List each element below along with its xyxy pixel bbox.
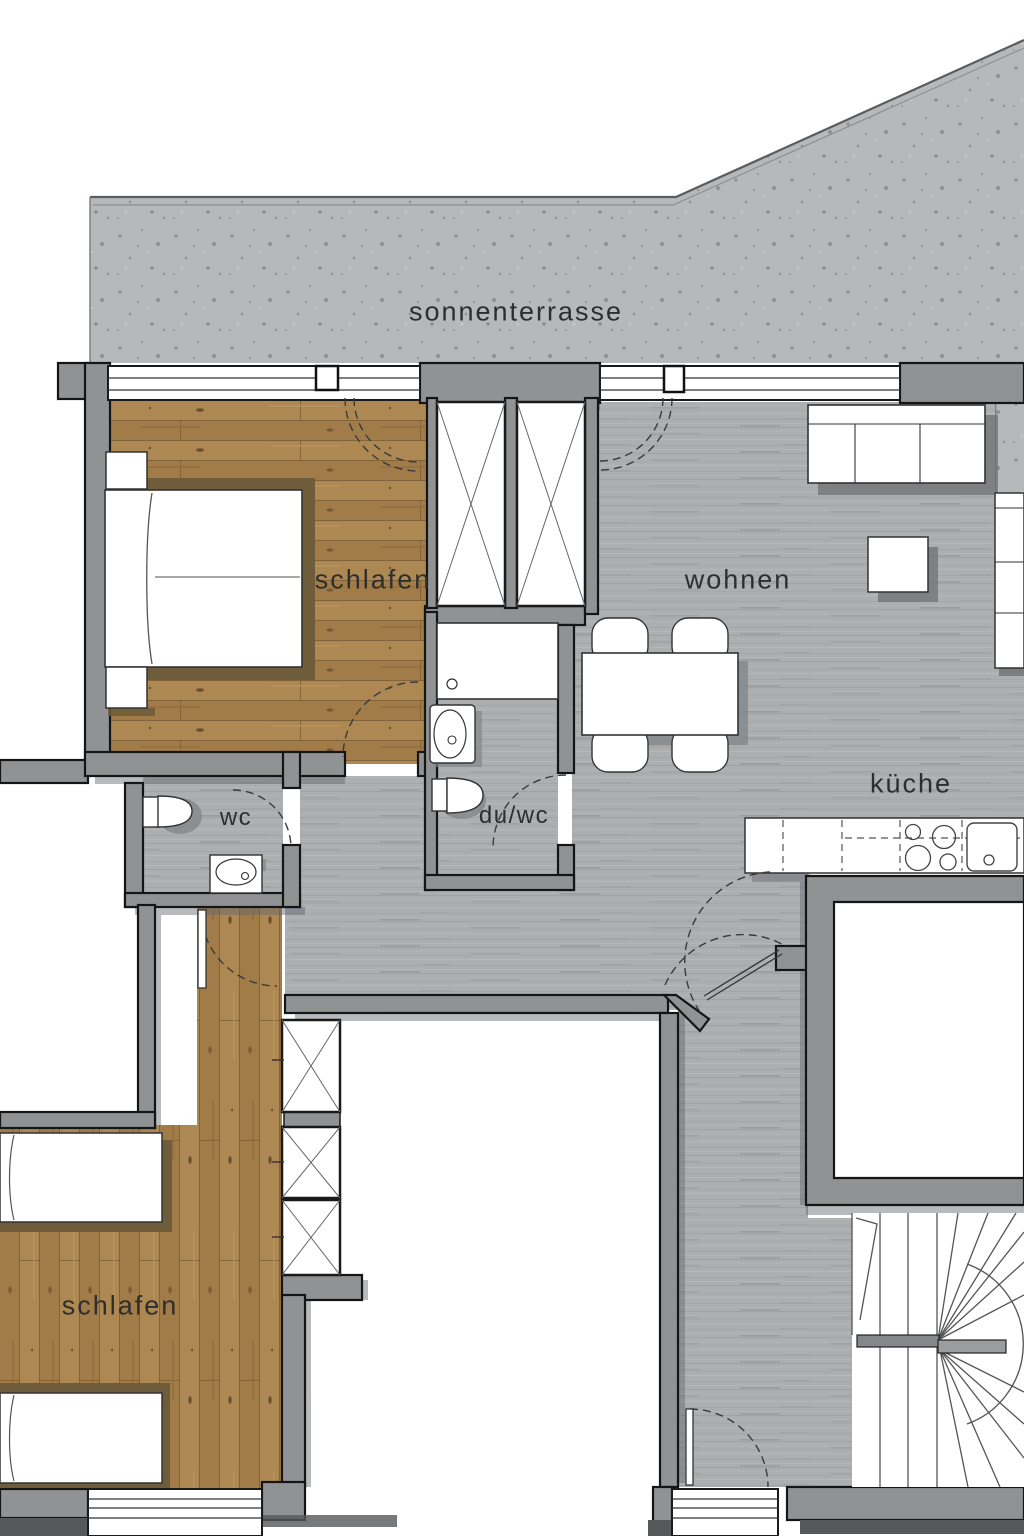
nightstand (106, 667, 147, 708)
kitchen-sink (967, 823, 1017, 871)
room-label-kitchen: küche (870, 769, 952, 800)
single-bed (0, 1393, 162, 1483)
shaft-box (517, 402, 585, 606)
room-label-living: wohnen (685, 565, 792, 596)
stairwell-void-walls (806, 876, 1024, 1205)
coffee-table (868, 537, 928, 592)
room-label-wc: wc (220, 804, 252, 832)
dining-table (582, 653, 738, 735)
kitchen-counter (745, 818, 1024, 873)
nightstand (106, 452, 147, 489)
stair-handrail (938, 1340, 1006, 1353)
room-label-bedroom2: schlafen (62, 1291, 179, 1322)
sofa (808, 405, 985, 483)
floor-plan: sonnenterrasse schlafen wohnen küche wc … (0, 0, 1024, 1536)
shower (437, 623, 558, 699)
entry-corridor-floor (678, 1008, 808, 1487)
corridor-door-leaf (686, 1409, 693, 1485)
winder-stairs (852, 1213, 1024, 1487)
window-bedroom1 (108, 366, 420, 400)
single-bed (0, 1133, 162, 1222)
wardrobe (282, 1127, 340, 1198)
double-bed (105, 490, 302, 667)
wardrobe (282, 1020, 340, 1112)
hall-floor (285, 888, 808, 1010)
room-label-bedroom1: schlafen (315, 565, 432, 596)
bedroom1-furniture (105, 452, 315, 716)
window-living (600, 366, 900, 400)
window-corridor (672, 1489, 778, 1536)
room-label-terrace: sonnenterrasse (409, 297, 623, 328)
washbasin (210, 855, 266, 893)
washbasin (430, 705, 482, 767)
kitchen-tall-counter (995, 493, 1024, 676)
toilet (143, 796, 192, 827)
bedroom2-door-leaf (198, 910, 206, 988)
window-bedroom2 (88, 1489, 262, 1536)
bedroom2-corridor-floor (197, 905, 282, 1130)
wardrobe (282, 1200, 340, 1275)
stair-handrail (857, 1335, 939, 1347)
shaft-box (437, 402, 505, 606)
room-label-shower-wc: du/wc (479, 802, 549, 830)
